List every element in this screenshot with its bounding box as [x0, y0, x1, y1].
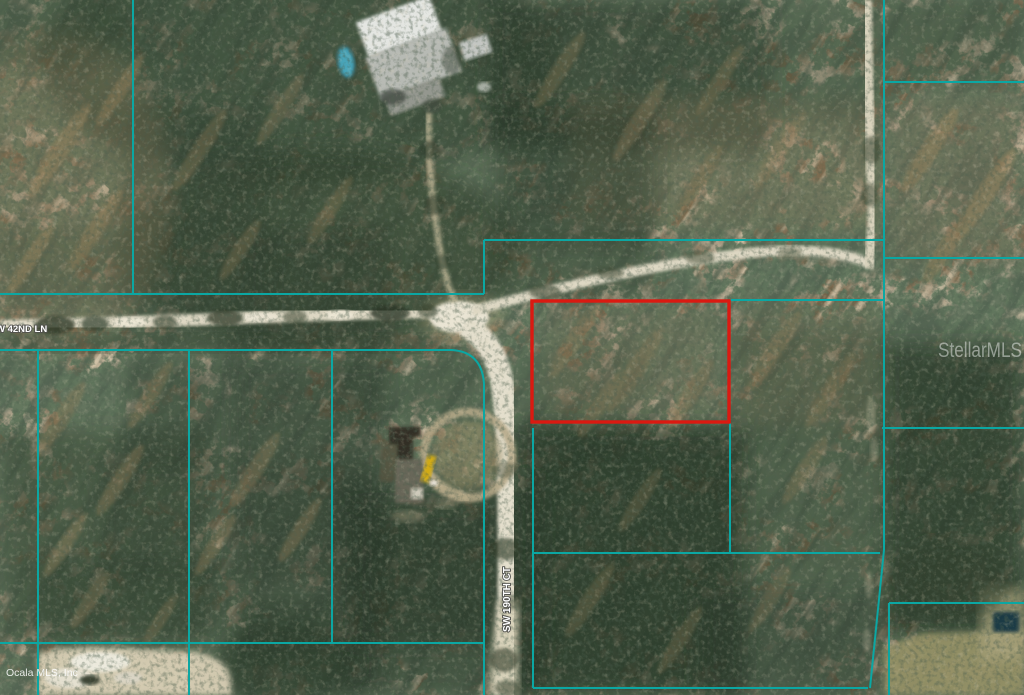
- svg-text:StellarMLS: StellarMLS: [938, 338, 1022, 362]
- svg-text:W 42ND LN: W 42ND LN: [0, 324, 47, 335]
- svg-text:SW 190TH CT: SW 190TH CT: [502, 567, 513, 632]
- svg-text:Ocala MLS, Inc: Ocala MLS, Inc: [6, 667, 78, 679]
